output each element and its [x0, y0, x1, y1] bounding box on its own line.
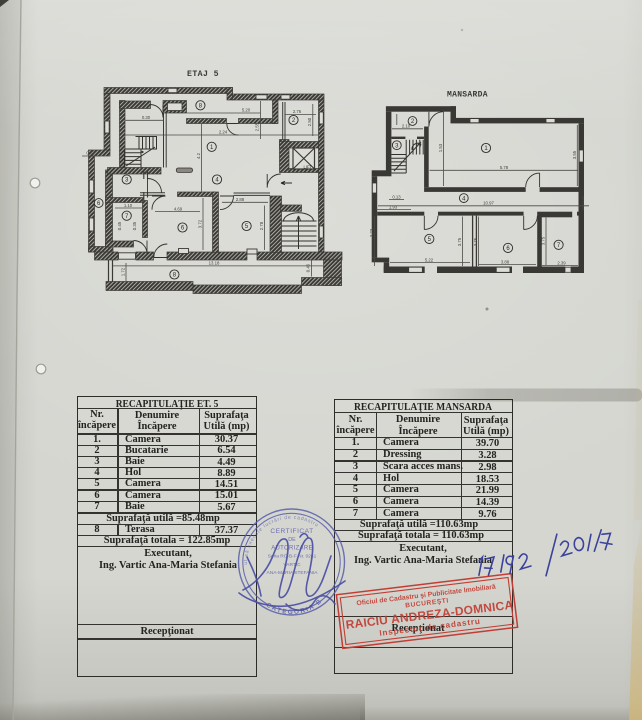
svg-text:CERTIFICAT: CERTIFICAT — [270, 528, 313, 535]
svg-text:DE: DE — [288, 537, 296, 543]
svg-text:Seria RO-B-F Nr. 0261: Seria RO-B-F Nr. 0261 — [268, 554, 317, 560]
